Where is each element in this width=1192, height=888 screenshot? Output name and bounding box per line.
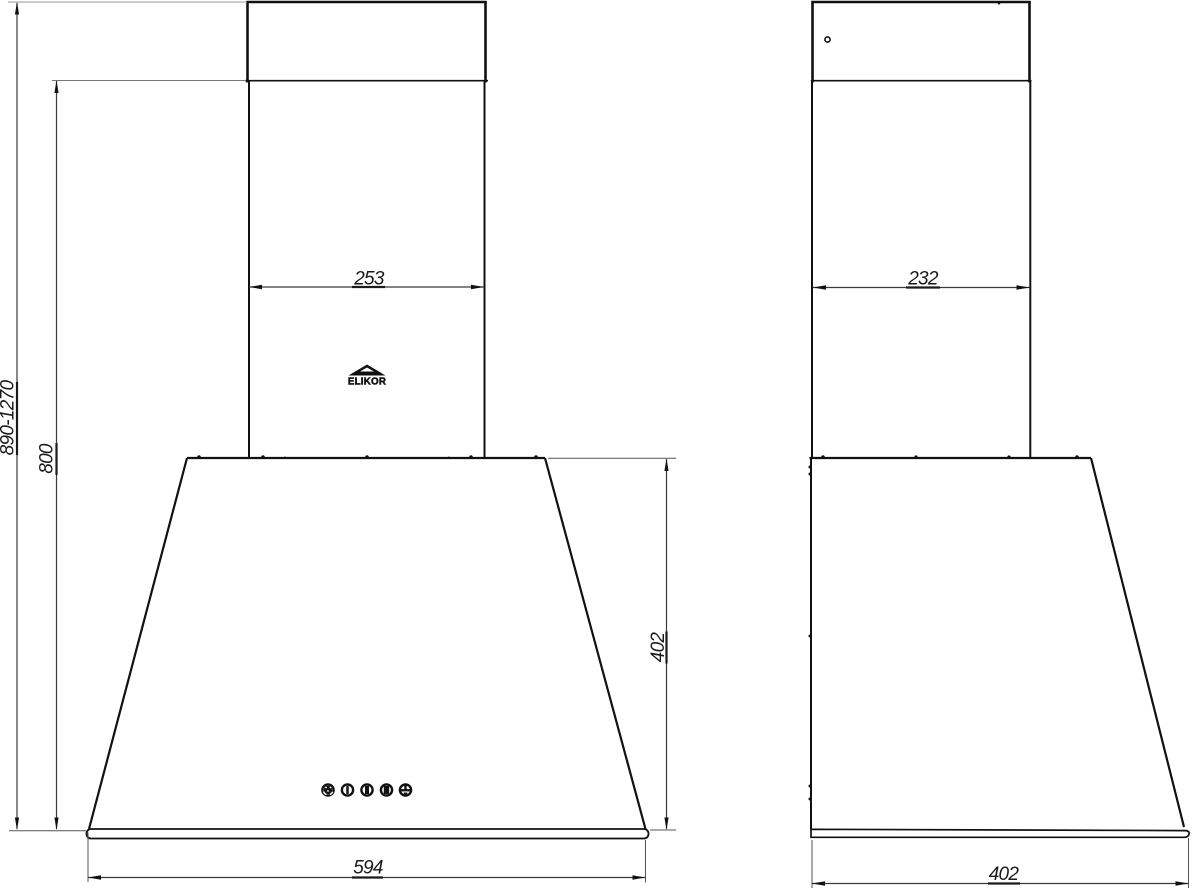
svg-text:232: 232: [907, 269, 939, 290]
svg-text:ELIKOR: ELIKOR: [348, 377, 386, 388]
svg-text:402: 402: [989, 864, 1020, 885]
svg-text:800: 800: [37, 443, 58, 474]
svg-text:594: 594: [353, 858, 383, 879]
svg-text:402: 402: [648, 632, 669, 663]
svg-text:253: 253: [353, 268, 385, 289]
svg-text:890-1270: 890-1270: [0, 380, 19, 456]
